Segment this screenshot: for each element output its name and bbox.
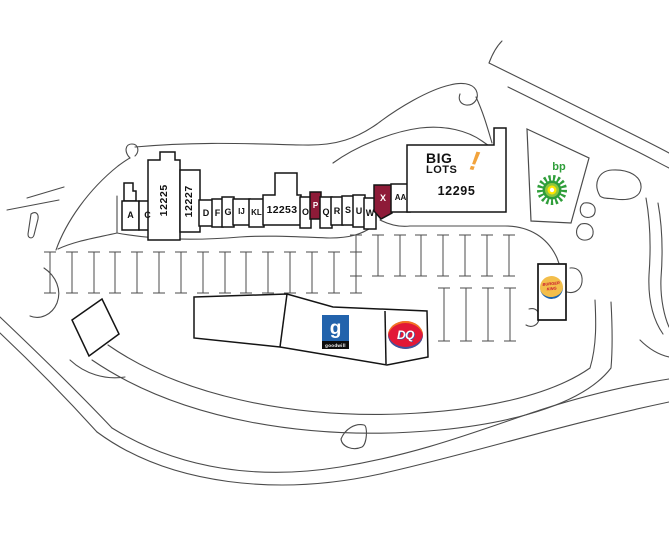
parking-row-marker: [437, 235, 449, 276]
road-cul-de-sac: [126, 144, 138, 158]
road-line: [58, 233, 117, 249]
road-line: [640, 340, 669, 357]
traffic-island: [577, 224, 594, 241]
road-line: [7, 200, 59, 210]
parking-row-marker: [88, 252, 100, 293]
parking-row-marker: [197, 252, 209, 293]
unit-X-shape[interactable]: [374, 185, 392, 219]
road-line: [489, 41, 502, 63]
traffic-island: [580, 203, 595, 218]
road-line: [135, 124, 377, 147]
parking-row-marker: [438, 288, 450, 341]
parking-row-marker: [503, 235, 515, 276]
road-line: [658, 203, 669, 327]
unit-KL-shape[interactable]: [249, 199, 264, 227]
parking-row-marker: [66, 252, 78, 293]
parking-row-marker: [481, 235, 493, 276]
parking-row-marker: [504, 288, 516, 341]
bp-parcel-shape[interactable]: [527, 129, 589, 223]
goodwill-dq-building-shape[interactable]: [194, 294, 428, 365]
road-line: [0, 333, 97, 432]
parking-row-marker: [175, 252, 187, 293]
parking-row-marker: [131, 252, 143, 293]
road-line: [380, 220, 563, 296]
parking-row-marker: [240, 252, 252, 293]
unit-12227-shape[interactable]: [180, 170, 200, 232]
unit-12253-shape[interactable]: [263, 173, 301, 225]
parking-row-marker: [306, 252, 318, 293]
site-plan-map: A C 12225 12227 D F G IJ KL 12253 O P Q …: [0, 0, 669, 559]
unit-A-notch-shape: [124, 183, 136, 201]
unit-D-shape[interactable]: [199, 200, 213, 226]
unit-U-shape[interactable]: [353, 195, 365, 227]
parking-row-marker: [219, 252, 231, 293]
road-line: [56, 158, 130, 250]
unit-12225-shape[interactable]: [148, 152, 180, 240]
parking-row-marker: [459, 235, 471, 276]
unit-R-shape[interactable]: [331, 197, 343, 225]
parking-row-marker: [284, 252, 296, 293]
burger-king-building-shape[interactable]: [538, 264, 566, 320]
parking-row-marker: [415, 235, 427, 276]
unit-A-shape[interactable]: [122, 201, 139, 230]
road-line: [27, 187, 64, 198]
road-line: [377, 83, 477, 124]
parking-row-marker: [372, 235, 384, 276]
road-hook: [567, 268, 582, 293]
traffic-island: [341, 425, 366, 449]
unit-G-shape[interactable]: [222, 197, 234, 227]
road-line: [489, 63, 669, 153]
unit-Q-shape[interactable]: [320, 197, 332, 228]
road-line: [112, 379, 669, 472]
traffic-island: [28, 213, 38, 238]
building-divider: [385, 311, 386, 364]
parking-row-marker: [328, 252, 340, 293]
parking-row-marker: [109, 252, 121, 293]
parking-row-marker: [460, 288, 472, 341]
site-plan-canvas: [0, 0, 669, 559]
unit-S-shape[interactable]: [342, 196, 354, 225]
unit-IJ-shape[interactable]: [233, 199, 250, 225]
parking-row-marker: [44, 252, 56, 293]
parking-row-marker: [262, 252, 274, 293]
parking-row-marker: [153, 252, 165, 293]
parking-row-marker: [350, 235, 362, 276]
parking-row-marker: [394, 235, 406, 276]
buildings-layer: [72, 128, 589, 365]
road-line: [476, 97, 492, 143]
parking-row-marker: [482, 288, 494, 341]
traffic-island: [597, 170, 641, 200]
